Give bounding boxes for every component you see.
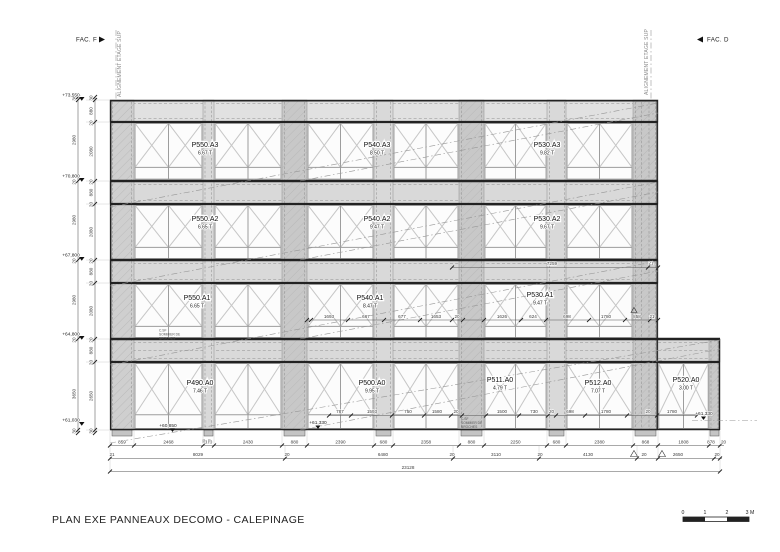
panel-id-label: P550.A1 bbox=[184, 295, 211, 302]
dim-label: 1626 bbox=[497, 314, 508, 319]
dim-label: 20 bbox=[72, 337, 77, 343]
window-bay bbox=[215, 284, 281, 337]
dim-label: 698 bbox=[563, 314, 571, 319]
dim-label: 1500 bbox=[497, 409, 508, 414]
scale-bar-segment bbox=[727, 517, 749, 522]
window-bay bbox=[135, 364, 202, 429]
dim-label: 880 bbox=[89, 346, 94, 354]
window-bay bbox=[135, 123, 202, 179]
dim-label: 30 bbox=[89, 428, 94, 434]
dim-label: 3650 bbox=[72, 388, 77, 399]
dim-label: 20 bbox=[89, 281, 94, 287]
elevation-label: +67,800 bbox=[62, 253, 80, 259]
elevation-label: +60,850 bbox=[159, 423, 177, 429]
dim-label: 50 bbox=[202, 439, 206, 443]
dim-label: 21 bbox=[109, 452, 115, 457]
dim-label: 20 bbox=[89, 179, 94, 185]
alignment-label-right: ALIGNEMENT ETAGE SUP bbox=[644, 28, 650, 95]
dim-label: 859 bbox=[118, 440, 126, 445]
dim-label: 2650 bbox=[89, 390, 94, 401]
dim-label: 2250 bbox=[510, 440, 521, 445]
dim-label-total: 23128 bbox=[402, 465, 415, 470]
panel-id-label: P540.A2 bbox=[364, 216, 391, 223]
elevation-label: +61,330 bbox=[309, 420, 327, 426]
dim-label: 1693 bbox=[324, 314, 335, 319]
panel-weight-label: 8.47 T bbox=[363, 304, 377, 310]
dim-label: 20 bbox=[89, 258, 94, 264]
scale-bar-segment bbox=[683, 517, 705, 522]
dim-label: 20 bbox=[89, 202, 94, 208]
dim-label: 20 bbox=[453, 409, 459, 414]
panel-id-label: P530.A2 bbox=[534, 216, 561, 223]
dim-label: 2080 bbox=[89, 146, 94, 157]
window-bay bbox=[394, 364, 458, 429]
panel-id-label: P490.A0 bbox=[187, 380, 214, 387]
dim-label: 750 bbox=[404, 409, 412, 414]
dim-label: 677 bbox=[398, 314, 406, 319]
panel-id-label: P512.A0 bbox=[585, 380, 612, 387]
dim-label: 20 bbox=[89, 360, 94, 366]
dim-label: 880 bbox=[89, 188, 94, 196]
panel-weight-label: 3.00 T bbox=[679, 386, 693, 392]
elevation-label: +70,800 bbox=[62, 174, 80, 180]
scale-tick-label: 0 bbox=[682, 510, 685, 516]
dim-label: 4130 bbox=[583, 452, 594, 457]
dim-label: 21 bbox=[649, 314, 655, 319]
window-bay bbox=[308, 123, 373, 179]
dim-label: 6480 bbox=[378, 452, 389, 457]
dim-label: 2380 bbox=[594, 440, 605, 445]
dim-label: 20 bbox=[537, 452, 543, 457]
panel-weight-label: 9.47 T bbox=[370, 225, 384, 231]
window-bay bbox=[394, 123, 458, 179]
dim-label: 680 bbox=[380, 440, 388, 445]
dim-label: 880 bbox=[291, 440, 299, 445]
panel-weight-label: 7.46 T bbox=[193, 389, 207, 395]
dim-label: 20 bbox=[645, 409, 651, 414]
window-bay bbox=[135, 205, 202, 258]
dim-label: 50 bbox=[208, 439, 212, 443]
pier-foot-dims: 50 50 bbox=[202, 439, 212, 443]
dim-label: 624 bbox=[529, 314, 537, 319]
dim-label: 880 bbox=[89, 267, 94, 275]
dim-label: 1780 bbox=[667, 409, 678, 414]
panel-weight-label: 9.82 T bbox=[540, 151, 554, 157]
panel-id-label: P500.A0 bbox=[359, 380, 386, 387]
dim-label: 698 bbox=[566, 409, 574, 414]
window-bay bbox=[308, 364, 373, 429]
note-line: BROCHES bbox=[461, 425, 478, 429]
dim-label: 2390 bbox=[335, 440, 346, 445]
window-bay bbox=[215, 364, 281, 429]
dim-label: 20 bbox=[449, 452, 455, 457]
dim-label: 2980 bbox=[72, 294, 77, 305]
panel-id-label: P540.A1 bbox=[357, 295, 384, 302]
panel-id-label: P530.A1 bbox=[527, 292, 554, 299]
dim-label: 1653 bbox=[431, 314, 442, 319]
dim-label: 1580 bbox=[432, 409, 443, 414]
panel-weight-label: 9.95 T bbox=[365, 389, 379, 395]
note-line: BROCHES bbox=[159, 337, 176, 341]
scale-tick-label: 3 M bbox=[746, 510, 755, 516]
window-bay bbox=[308, 205, 373, 258]
dim-label: 1780 bbox=[601, 314, 612, 319]
scale-tick-label: 1 bbox=[704, 510, 707, 516]
elevation-label: +73,550 bbox=[62, 93, 80, 99]
window-bay bbox=[567, 205, 632, 258]
panel-id-label: P520.A0 bbox=[673, 377, 700, 384]
dim-label: 878 bbox=[707, 440, 715, 445]
panel-weight-label: 9.67 T bbox=[540, 225, 554, 231]
window-bay bbox=[659, 364, 708, 429]
panel-id-label: P540.A3 bbox=[364, 142, 391, 149]
dim-label: 2468 bbox=[163, 440, 174, 445]
dim-label: 1808 bbox=[678, 440, 689, 445]
dim-label: 2358 bbox=[421, 440, 432, 445]
dim-label: 7259 bbox=[547, 261, 558, 266]
panel-id-label: P550.A2 bbox=[192, 216, 219, 223]
dim-label: 20 bbox=[72, 179, 77, 185]
dim-label: 2980 bbox=[72, 214, 77, 225]
dim-label: 20 bbox=[721, 440, 727, 445]
window-bay bbox=[485, 123, 546, 179]
dim-label: 20 bbox=[454, 314, 460, 319]
panel-weight-label: 7.07 T bbox=[591, 389, 605, 395]
panel-weight-label: 4.79 T bbox=[493, 386, 507, 392]
window-bay bbox=[215, 123, 281, 179]
facade-drawing: 30 2980 20 2980 20 2980 20 3650 30 30 88… bbox=[0, 0, 780, 552]
dim-label: 880 bbox=[89, 107, 94, 115]
window-bay bbox=[308, 284, 373, 337]
dim-label: 20 bbox=[89, 337, 94, 343]
dim-label: 30 bbox=[72, 428, 77, 434]
dim-label: 880 bbox=[468, 440, 476, 445]
window-bay bbox=[567, 284, 632, 337]
scale-tick-label: 2 bbox=[726, 510, 729, 516]
dim-label: 3110 bbox=[491, 452, 501, 457]
dim-label: 2980 bbox=[72, 134, 77, 145]
dim-label: 20 bbox=[284, 452, 290, 457]
dim-label: 20 bbox=[72, 258, 77, 264]
dim-label: 20 bbox=[641, 452, 647, 457]
dim-label: 2430 bbox=[243, 440, 254, 445]
dim-label: 680 bbox=[553, 440, 561, 445]
drawing-title: PLAN EXE PANNEAUX DECOMO - CALEPINAGE bbox=[52, 514, 305, 526]
dim-label: 20 bbox=[549, 409, 555, 414]
panel-weight-label: 9.47 T bbox=[533, 301, 547, 307]
facade-f-label: FAC. F bbox=[76, 37, 97, 44]
panel-weight-label: 6.67 T bbox=[198, 151, 212, 157]
window-bay bbox=[135, 284, 202, 337]
dim-label: 21 bbox=[648, 261, 654, 266]
dim-label: 667 bbox=[362, 314, 370, 319]
dim-label: 1780 bbox=[601, 409, 612, 414]
elevation-label: +64,800 bbox=[62, 332, 80, 338]
panel-id-label: P530.A3 bbox=[534, 142, 561, 149]
dim-label: 787 bbox=[336, 409, 344, 414]
elevation-label: +61,330 bbox=[695, 411, 713, 417]
panel-id-label: P550.A3 bbox=[192, 142, 219, 149]
dim-label: 20 bbox=[714, 452, 720, 457]
dim-label: 30 bbox=[89, 95, 94, 101]
alignment-label-left: ALIGNEMENT ETAGE SUP bbox=[117, 30, 123, 97]
dim-label: 858 bbox=[633, 314, 641, 319]
window-bay bbox=[485, 364, 546, 429]
panel-weight-label: 6.65 T bbox=[190, 304, 204, 310]
dim-label: 730 bbox=[530, 409, 538, 414]
window-bay bbox=[567, 364, 632, 429]
dim-label: 20 bbox=[89, 120, 94, 126]
dim-label: 2080 bbox=[89, 226, 94, 237]
dim-label: 8029 bbox=[193, 452, 204, 457]
panel-weight-label: 8.50 T bbox=[370, 151, 384, 157]
panel-id-label: P511.A0 bbox=[487, 377, 513, 384]
dim-label: 868 bbox=[642, 440, 650, 445]
elevation-label: +61,030 bbox=[62, 418, 80, 424]
dim-label: 1593 bbox=[367, 409, 378, 414]
facade-d-label: FAC. D bbox=[707, 37, 729, 44]
window-bay bbox=[215, 205, 281, 258]
window-bay bbox=[567, 123, 632, 179]
dim-label: 2650 bbox=[673, 452, 684, 457]
panel-weight-label: 6.65 T bbox=[198, 225, 212, 231]
dim-label: 2080 bbox=[89, 305, 94, 316]
